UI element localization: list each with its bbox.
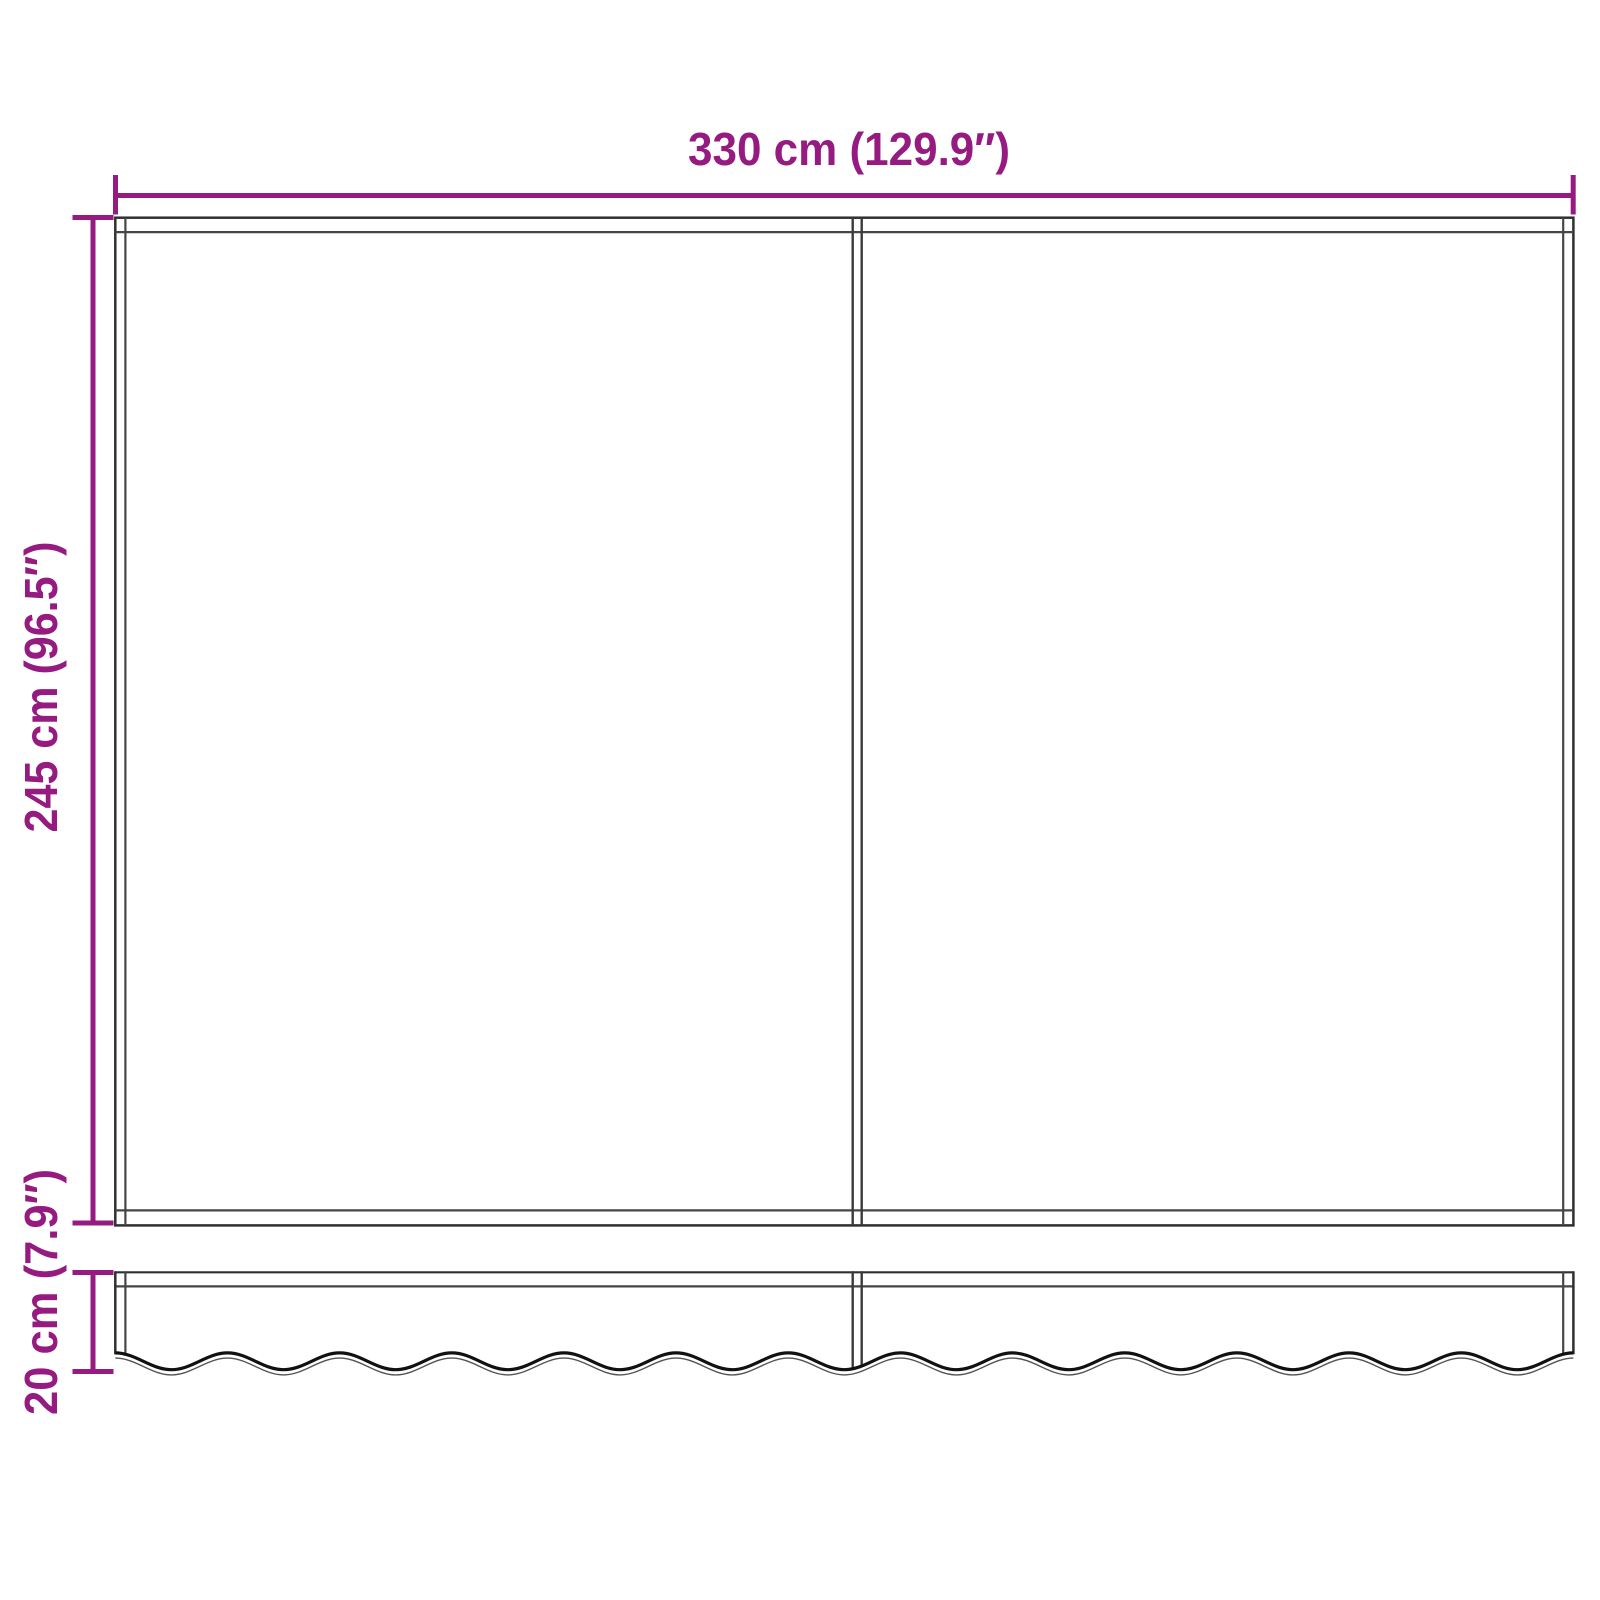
svg-text:330 cm (129.9″): 330 cm (129.9″) [688, 123, 1010, 175]
svg-text:245 cm (96.5″): 245 cm (96.5″) [15, 542, 67, 833]
svg-text:20 cm (7.9″): 20 cm (7.9″) [15, 1169, 67, 1415]
